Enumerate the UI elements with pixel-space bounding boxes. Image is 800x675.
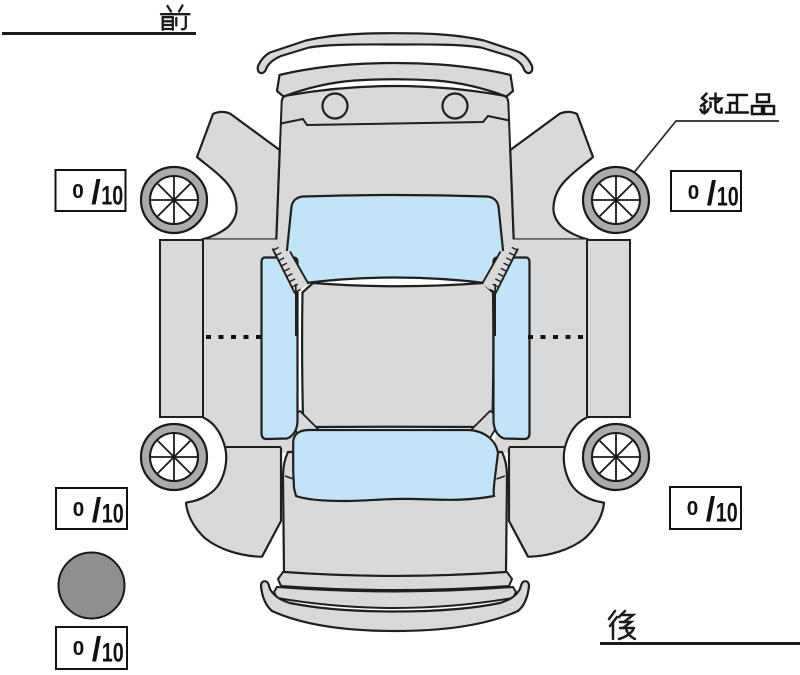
svg-text:0: 0	[72, 181, 84, 203]
svg-text:10: 10	[102, 499, 124, 529]
svg-text:/: /	[707, 175, 717, 213]
svg-text:0: 0	[73, 638, 85, 660]
svg-text:10: 10	[716, 498, 738, 528]
svg-text:/: /	[92, 631, 102, 669]
svg-text:10: 10	[102, 638, 124, 668]
svg-text:/: /	[706, 491, 716, 529]
svg-text:10: 10	[101, 181, 123, 211]
svg-text:/: /	[91, 174, 101, 212]
svg-text:0: 0	[687, 498, 699, 520]
svg-text:/: /	[92, 492, 102, 530]
svg-text:0: 0	[688, 182, 700, 204]
svg-text:0: 0	[73, 499, 85, 521]
svg-text:10: 10	[717, 182, 739, 212]
